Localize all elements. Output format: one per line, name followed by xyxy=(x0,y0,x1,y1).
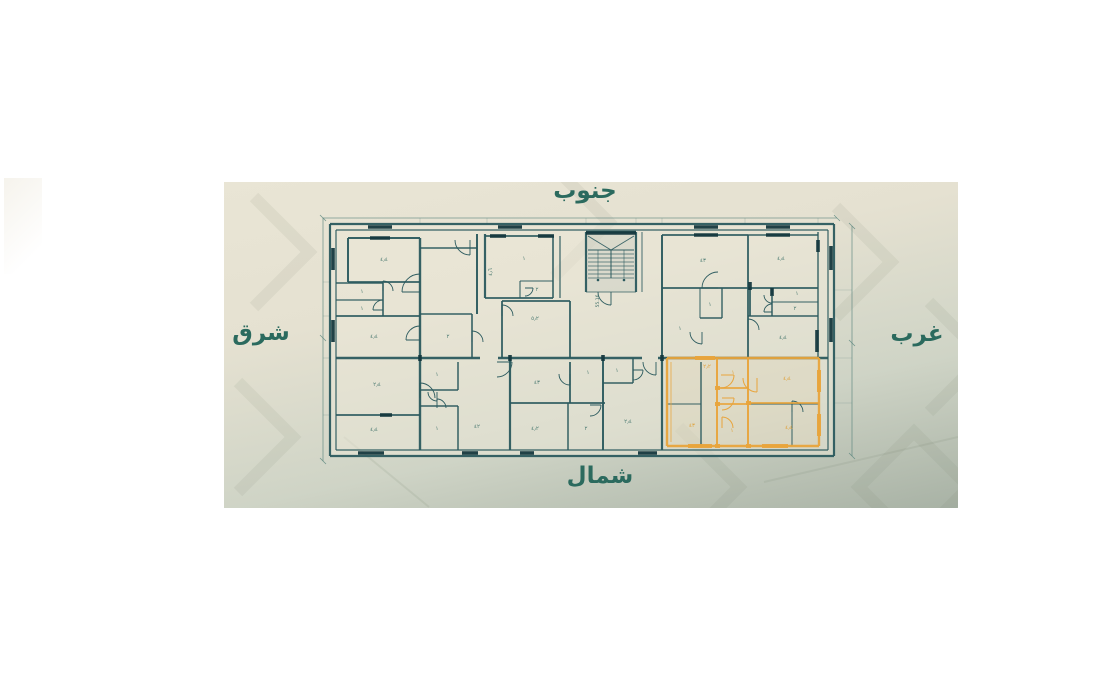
svg-text:٢٫٢: ٢٫٢ xyxy=(703,364,711,370)
direction-label-west: غرب xyxy=(888,322,946,347)
svg-text:٢٫٤: ٢٫٤ xyxy=(373,382,381,388)
floor-plan-drawing: 55.16٤٫٤١١٤٫٤٤٫٦٢١٢٥٫٢٤٣٤٫٤١٢٤٫٤١١٢٫٤٤٫٤… xyxy=(320,215,855,464)
svg-text:٤٫٤: ٤٫٤ xyxy=(370,427,378,433)
svg-text:١: ١ xyxy=(616,368,619,374)
direction-label-north: شمال xyxy=(535,464,665,489)
svg-text:55.16: 55.16 xyxy=(595,294,601,307)
svg-text:١: ١ xyxy=(436,372,439,378)
svg-text:١: ١ xyxy=(709,302,712,308)
svg-text:١: ١ xyxy=(679,326,682,332)
svg-text:١: ١ xyxy=(587,370,590,376)
svg-text:٢: ٢ xyxy=(447,334,450,340)
svg-text:٤٫٢: ٤٫٢ xyxy=(531,426,539,432)
svg-text:٤٫٤: ٤٫٤ xyxy=(370,334,378,340)
direction-label-east: شرق xyxy=(228,321,294,346)
svg-text:٢: ٢ xyxy=(536,287,539,293)
svg-text:١: ١ xyxy=(523,256,526,262)
svg-text:٤٣: ٤٣ xyxy=(534,380,540,386)
svg-text:٤٣: ٤٣ xyxy=(689,423,695,429)
svg-text:١: ١ xyxy=(361,289,364,295)
svg-text:٥٫٢: ٥٫٢ xyxy=(531,316,539,322)
svg-text:٤٫٤: ٤٫٤ xyxy=(777,256,785,262)
svg-text:٤٣: ٤٣ xyxy=(700,258,706,264)
svg-text:٤٫٤: ٤٫٤ xyxy=(779,335,787,341)
svg-text:٢: ٢ xyxy=(794,306,797,312)
svg-text:٢٫٤: ٢٫٤ xyxy=(624,419,632,425)
svg-text:٢: ٢ xyxy=(585,426,588,432)
svg-text:١: ١ xyxy=(436,426,439,432)
svg-text:١: ١ xyxy=(361,306,364,312)
svg-text:٤٫٤: ٤٫٤ xyxy=(785,425,793,431)
svg-text:٤٫٤: ٤٫٤ xyxy=(783,376,791,382)
svg-text:١: ١ xyxy=(796,291,799,297)
svg-text:١: ١ xyxy=(732,370,735,376)
page-root: { "colors":{ "wall":"#2b5a5e", "wallDark… xyxy=(0,0,1096,693)
direction-label-south: جنوب xyxy=(520,179,650,204)
svg-text:١: ١ xyxy=(731,428,734,434)
svg-text:٤٫٤: ٤٫٤ xyxy=(380,257,388,263)
svg-text:٤٫٦: ٤٫٦ xyxy=(488,268,494,276)
svg-text:٤٢: ٤٢ xyxy=(474,424,480,430)
